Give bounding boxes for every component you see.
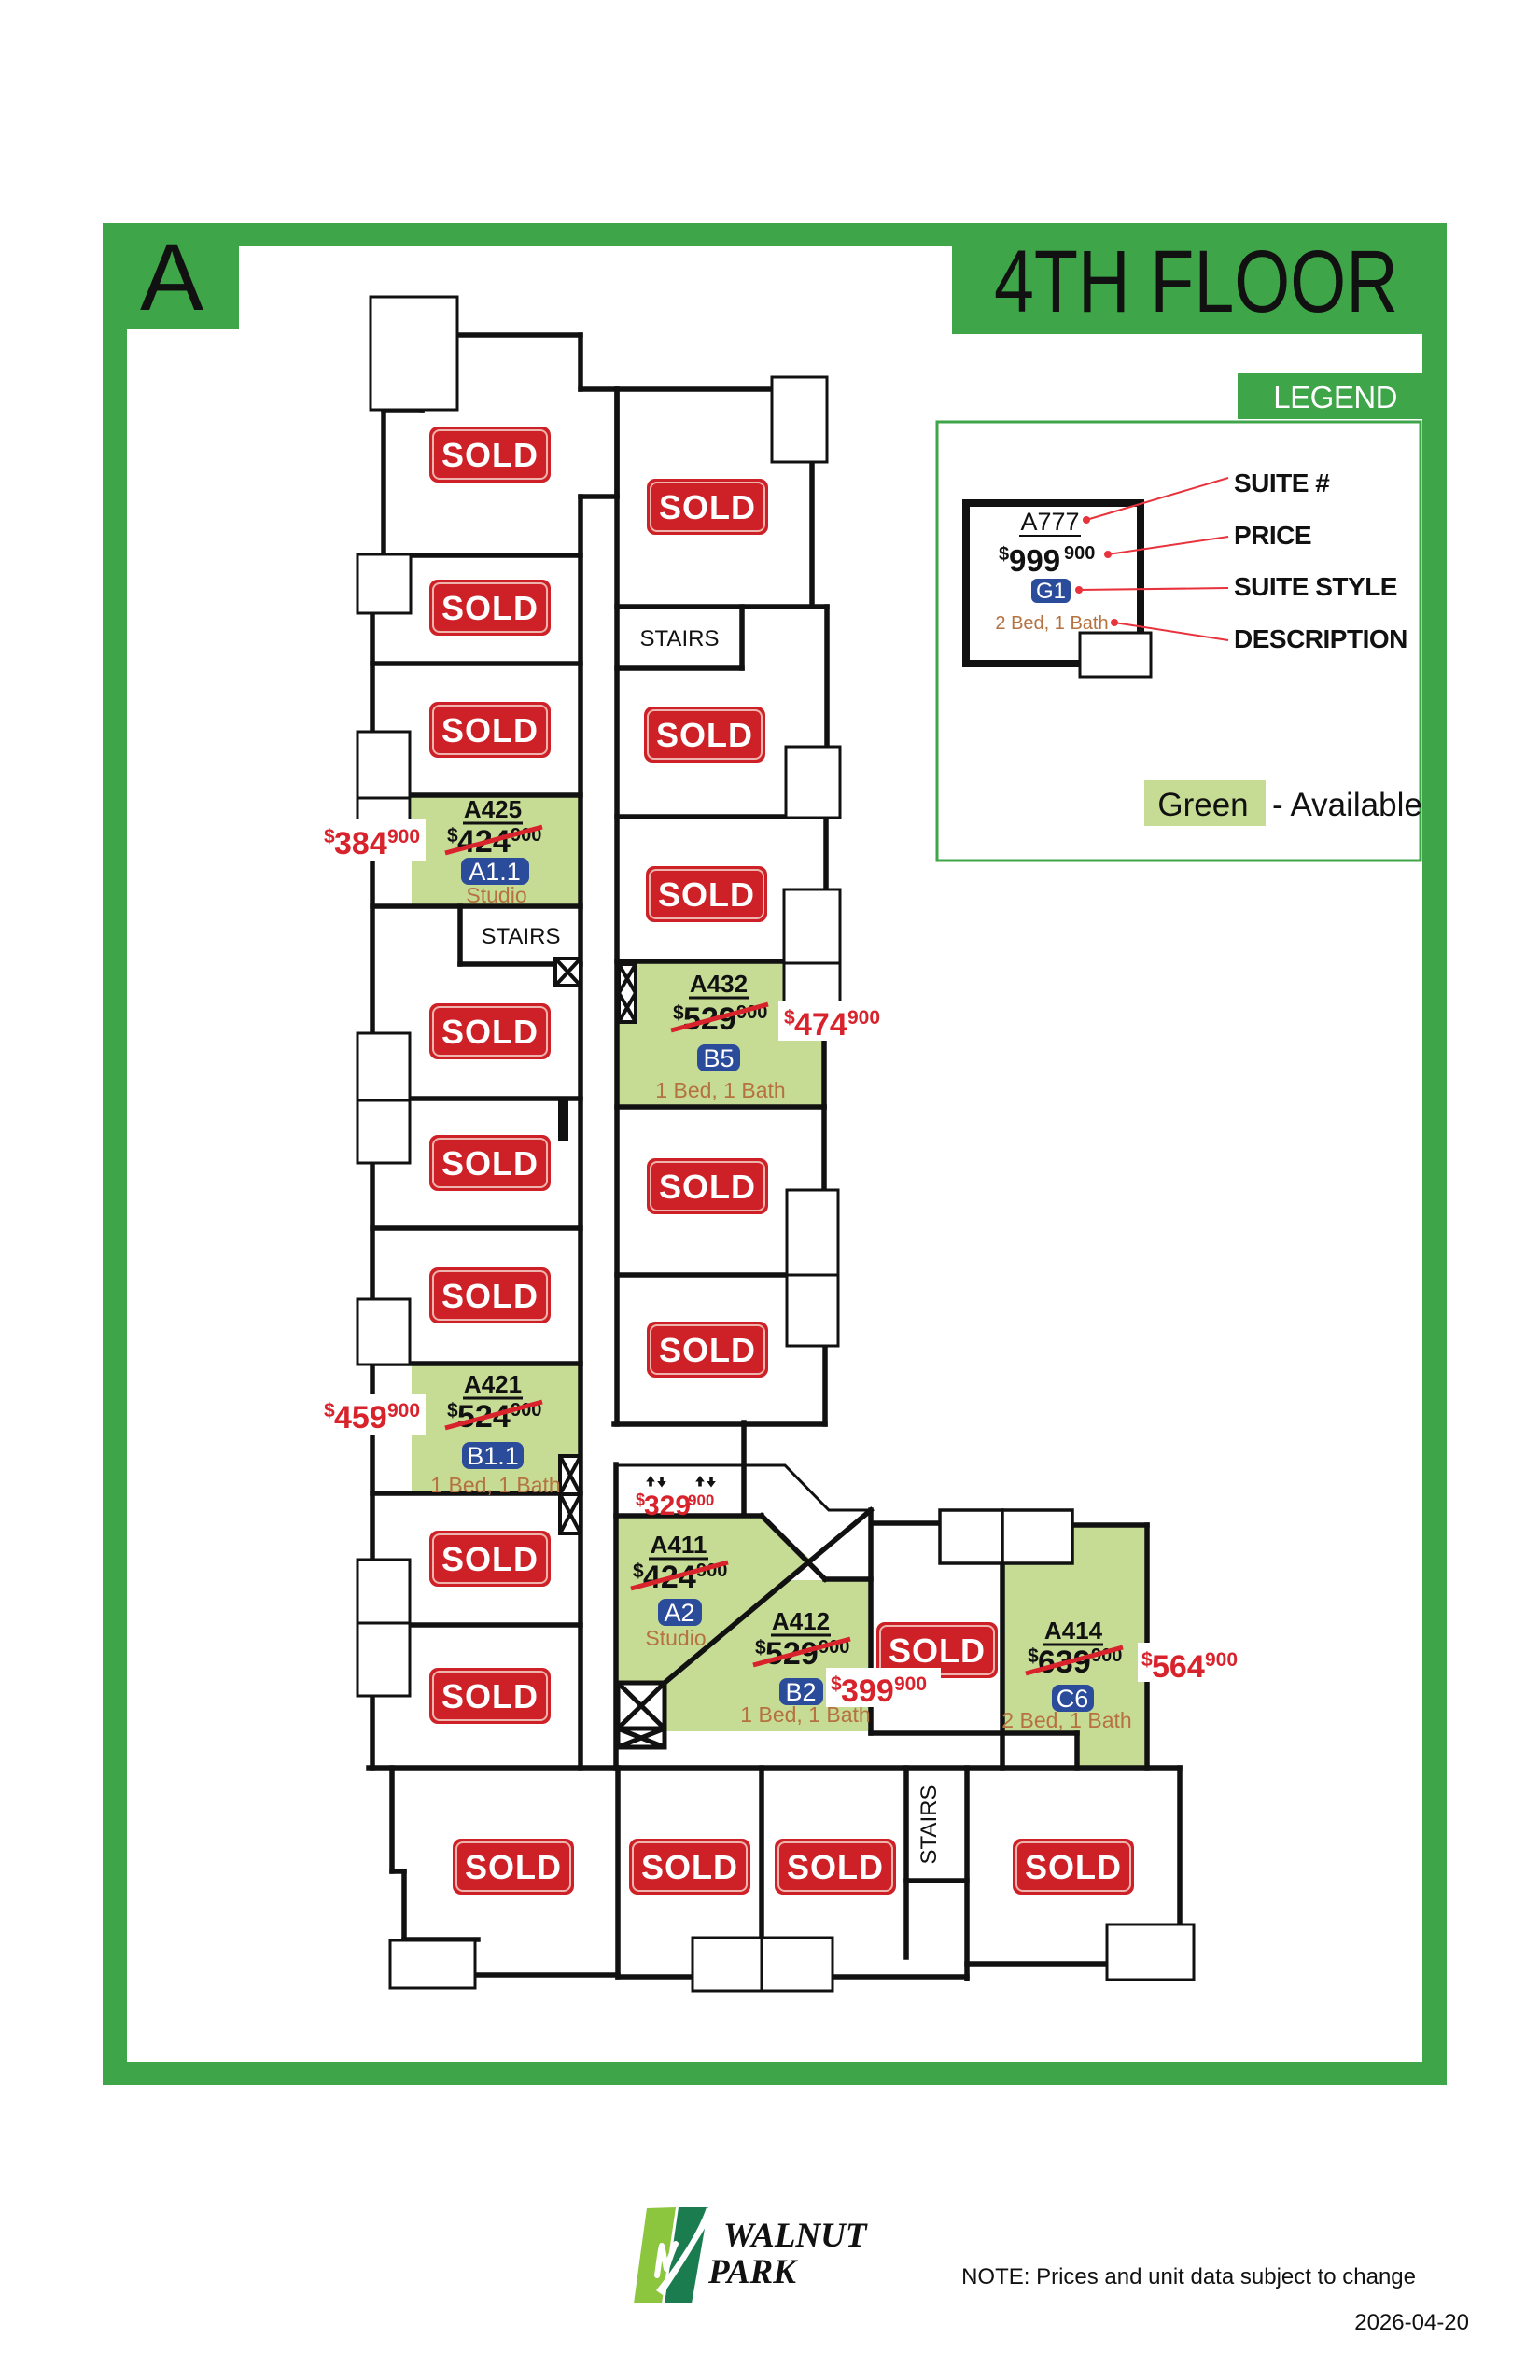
svg-text:4TH FLOOR: 4TH FLOOR — [994, 232, 1398, 331]
svg-text:900: 900 — [894, 1673, 927, 1695]
svg-text:$: $ — [999, 544, 1009, 565]
svg-text:900: 900 — [1064, 543, 1095, 564]
svg-text:STAIRS: STAIRS — [640, 626, 720, 651]
svg-text:A777: A777 — [1020, 508, 1079, 536]
svg-text:474: 474 — [794, 1007, 847, 1043]
svg-text:900: 900 — [688, 1491, 714, 1509]
svg-text:399: 399 — [841, 1673, 894, 1709]
svg-text:459: 459 — [334, 1400, 387, 1435]
svg-text:B1.1: B1.1 — [467, 1442, 519, 1470]
svg-text:A1.1: A1.1 — [469, 858, 521, 886]
svg-text:2026-04-20: 2026-04-20 — [1354, 2310, 1469, 2335]
svg-text:384: 384 — [334, 826, 387, 861]
svg-text:2 Bed, 1 Bath: 2 Bed, 1 Bath — [995, 613, 1108, 634]
svg-text:564: 564 — [1152, 1649, 1205, 1685]
svg-text:PRICE: PRICE — [1234, 521, 1311, 550]
svg-text:900: 900 — [847, 1007, 880, 1029]
svg-text:2 Bed, 1 Bath: 2 Bed, 1 Bath — [1001, 1708, 1131, 1732]
svg-text:DESCRIPTION: DESCRIPTION — [1234, 624, 1407, 653]
svg-text:A425: A425 — [464, 795, 522, 823]
svg-text:A412: A412 — [772, 1607, 830, 1635]
svg-text:1 Bed, 1 Bath: 1 Bed, 1 Bath — [655, 1078, 785, 1102]
svg-text:900: 900 — [387, 1400, 420, 1421]
svg-text:G1: G1 — [1036, 579, 1066, 604]
svg-text:SUITE STYLE: SUITE STYLE — [1234, 572, 1397, 601]
svg-text:WALNUT: WALNUT — [723, 2217, 868, 2255]
svg-text:A411: A411 — [651, 1531, 707, 1559]
svg-text:Green: Green — [1157, 787, 1248, 823]
svg-text:A2: A2 — [664, 1599, 694, 1627]
svg-text:Studio: Studio — [466, 883, 526, 907]
svg-text:A: A — [140, 224, 203, 330]
svg-text:A421: A421 — [464, 1370, 522, 1398]
svg-text:900: 900 — [387, 826, 420, 847]
svg-text:A432: A432 — [690, 970, 748, 998]
svg-text:B5: B5 — [703, 1044, 734, 1072]
svg-text:A414: A414 — [1044, 1617, 1103, 1645]
svg-text:STAIRS: STAIRS — [917, 1785, 942, 1865]
svg-text:900: 900 — [1205, 1649, 1238, 1671]
svg-text:STAIRS: STAIRS — [482, 924, 561, 949]
svg-text:999: 999 — [1009, 543, 1060, 578]
svg-text:NOTE: Prices and unit data sub: NOTE: Prices and unit data subject to ch… — [961, 2264, 1416, 2289]
svg-text:- Available: - Available — [1272, 787, 1422, 823]
svg-text:1 Bed, 1 Bath: 1 Bed, 1 Bath — [430, 1473, 560, 1497]
svg-text:LEGEND: LEGEND — [1273, 380, 1397, 414]
svg-text:PARK: PARK — [707, 2253, 798, 2291]
svg-text:Studio: Studio — [645, 1626, 706, 1650]
svg-text:329: 329 — [644, 1491, 691, 1521]
svg-text:SUITE #: SUITE # — [1234, 469, 1330, 497]
